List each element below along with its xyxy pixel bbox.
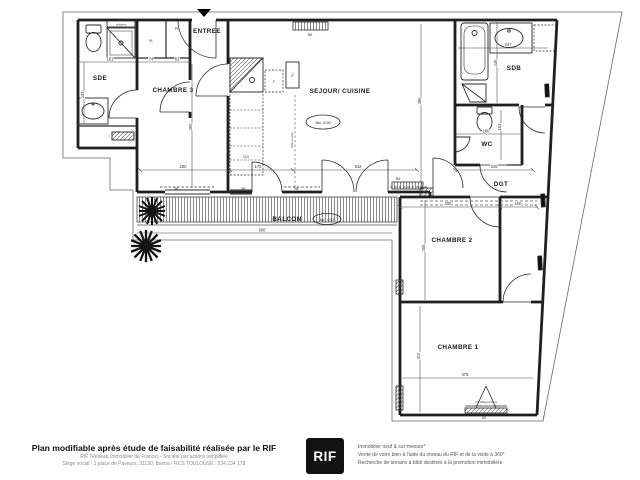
sdb-basin bbox=[462, 84, 486, 102]
dim-pl2: 63 bbox=[175, 57, 180, 62]
dim-wc-h: 153 bbox=[497, 123, 502, 131]
room-label-entree: ENTREE bbox=[193, 28, 221, 35]
dim-corridor-w: 100 bbox=[515, 201, 523, 206]
label-ch1-av: AV bbox=[482, 416, 487, 420]
label-cui: CUI bbox=[243, 155, 249, 159]
label-frigo: F bbox=[273, 80, 275, 84]
bathtub-icon bbox=[461, 23, 488, 80]
room-label-sejour: SEJOUR/ CUISINE bbox=[310, 88, 371, 95]
radiator-icon bbox=[112, 132, 134, 140]
label-ra2: RA bbox=[396, 177, 401, 181]
dim-ch2-h: 305 bbox=[421, 244, 426, 252]
dim-sde-w: 161 bbox=[107, 57, 115, 62]
label-pl1: PL bbox=[149, 39, 153, 43]
level-sejour: Niv. 0.00 bbox=[315, 120, 331, 125]
dim-sdb-w: 247 bbox=[505, 42, 513, 47]
ch1-window bbox=[465, 408, 507, 413]
floor-plan-page: SDE CHAMBRE 3 ENTREE SEJOUR/ CUISINE SDB… bbox=[0, 0, 640, 480]
dim-ch3-w: 250 bbox=[180, 164, 188, 169]
dim-balcon-w: 600 bbox=[259, 228, 267, 233]
dim-sejour-h: 495 bbox=[417, 97, 422, 105]
footer-address-line: Siège social : 1 place de Paveurs, 31130… bbox=[8, 461, 300, 468]
dim-ch2-w: 300 bbox=[445, 201, 453, 206]
entrance-arrow-icon bbox=[197, 9, 211, 17]
footer-service-line: Recherche de terrains à bâtir destinés à… bbox=[358, 460, 505, 468]
footer-left-block: Plan modifiable après étude de faisabili… bbox=[0, 444, 300, 467]
dim-ch1-w: 375 bbox=[462, 372, 470, 377]
window-icon bbox=[538, 256, 543, 270]
dim-sejour-w: 542 bbox=[355, 164, 363, 169]
dim-pl1: 74 bbox=[149, 57, 154, 62]
toilet-icon bbox=[86, 25, 101, 33]
label-pl2: PL bbox=[175, 27, 179, 31]
kitchen-fixtures bbox=[230, 58, 299, 188]
room-label-dgt: DGT bbox=[494, 181, 509, 188]
dim-ch1-h: 312 bbox=[416, 352, 421, 360]
room-label-chambre3: CHAMBRE 3 bbox=[152, 87, 193, 94]
room-label-chambre2: CHAMBRE 2 bbox=[431, 237, 472, 244]
room-label-sdb: SDB bbox=[507, 65, 522, 72]
dim-wc-w: 180 bbox=[483, 129, 491, 134]
label-window-vh: VH bbox=[174, 187, 179, 191]
window-icon bbox=[545, 84, 550, 97]
dim-sde-h: 233 bbox=[80, 91, 85, 99]
dim-ch3-h: 360 bbox=[188, 123, 193, 131]
footer: Plan modifiable après étude de faisabili… bbox=[0, 432, 640, 480]
footer-title: Plan modifiable après étude de faisabili… bbox=[8, 444, 300, 454]
label-window-vb1: VB bbox=[241, 187, 245, 191]
label-window-vb2: VB bbox=[294, 187, 298, 191]
label-ch1-window: VH. Allège=120cm bbox=[475, 400, 498, 404]
corner-basin-icon bbox=[455, 137, 470, 152]
level-balcon: Niv. -0.02 bbox=[320, 218, 334, 222]
floor-plan-drawing: SDE CHAMBRE 3 ENTREE SEJOUR/ CUISINE SDB… bbox=[0, 0, 640, 432]
sdb-vanity bbox=[490, 23, 532, 53]
window-icon bbox=[541, 194, 546, 207]
footer-service-line: Vente de votre bien à l'aide du réseau d… bbox=[358, 452, 505, 460]
dim-kitchen-w: 170 bbox=[255, 164, 263, 169]
rif-logo: RIF bbox=[306, 438, 344, 474]
radiator-icon bbox=[392, 182, 423, 189]
label-ra1: RA bbox=[308, 33, 313, 37]
footer-services: Immobilier neuf & sur-mesure* Vente de v… bbox=[358, 444, 505, 467]
label-limite-cuisine: limite cuisine bbox=[290, 132, 294, 148]
dim-dgt-w: 226 bbox=[491, 164, 499, 169]
room-label-balcon: BALCON bbox=[272, 216, 301, 223]
footer-company-line: RIF (Réseau Immobilier de France) - Soci… bbox=[8, 454, 300, 461]
dim-sdb-h: 236 bbox=[493, 59, 498, 67]
footer-service-line: Immobilier neuf & sur-mesure* bbox=[358, 444, 505, 452]
room-label-sde: SDE bbox=[93, 75, 107, 82]
sdb-fixtures bbox=[461, 23, 556, 102]
radiator-icon bbox=[293, 22, 328, 30]
label-tel: TEL bbox=[291, 72, 295, 77]
room-label-chambre1: CHAMBRE 1 bbox=[437, 344, 478, 351]
label-paillasse: paillasse bbox=[116, 23, 127, 27]
room-label-wc: WC bbox=[481, 141, 492, 148]
balcony-deck bbox=[137, 197, 397, 225]
